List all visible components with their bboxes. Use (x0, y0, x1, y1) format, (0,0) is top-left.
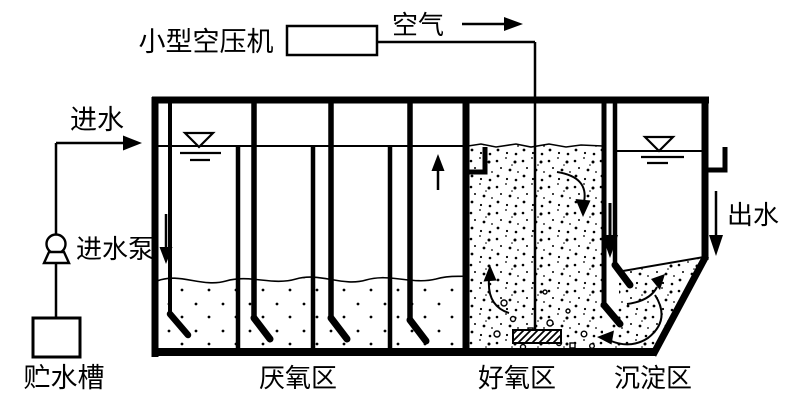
label-outlet: 出水 (727, 201, 779, 231)
process-flow-diagram: 小型空压机 空气 进水 进水泵 贮水槽 厌氧区 好氧区 沉淀区 出水 (0, 0, 800, 410)
air-diffuser (513, 330, 561, 343)
label-zone-sedimentation: 沉淀区 (614, 364, 692, 394)
diagram-canvas: 小型空压机 空气 进水 进水泵 贮水槽 厌氧区 好氧区 沉淀区 出水 (0, 0, 800, 410)
pump-icon (44, 235, 69, 264)
storage-tank-box (33, 318, 80, 357)
label-inlet-pump: 进水泵 (76, 235, 154, 265)
label-zone-aerobic: 好氧区 (478, 364, 556, 394)
outlet-weir (708, 147, 725, 170)
label-zone-anaerobic: 厌氧区 (259, 364, 337, 394)
upflow-arrow-compartment4 (432, 154, 445, 190)
label-inlet: 进水 (70, 105, 124, 136)
inlet-arrowhead-icon (123, 136, 142, 151)
air-label-arrow (462, 17, 523, 31)
label-air: 空气 (392, 11, 444, 41)
label-compressor: 小型空压机 (139, 27, 274, 58)
compressor-box (287, 26, 377, 55)
outlet-arrow (709, 191, 723, 256)
label-storage-tank: 贮水槽 (24, 363, 105, 394)
